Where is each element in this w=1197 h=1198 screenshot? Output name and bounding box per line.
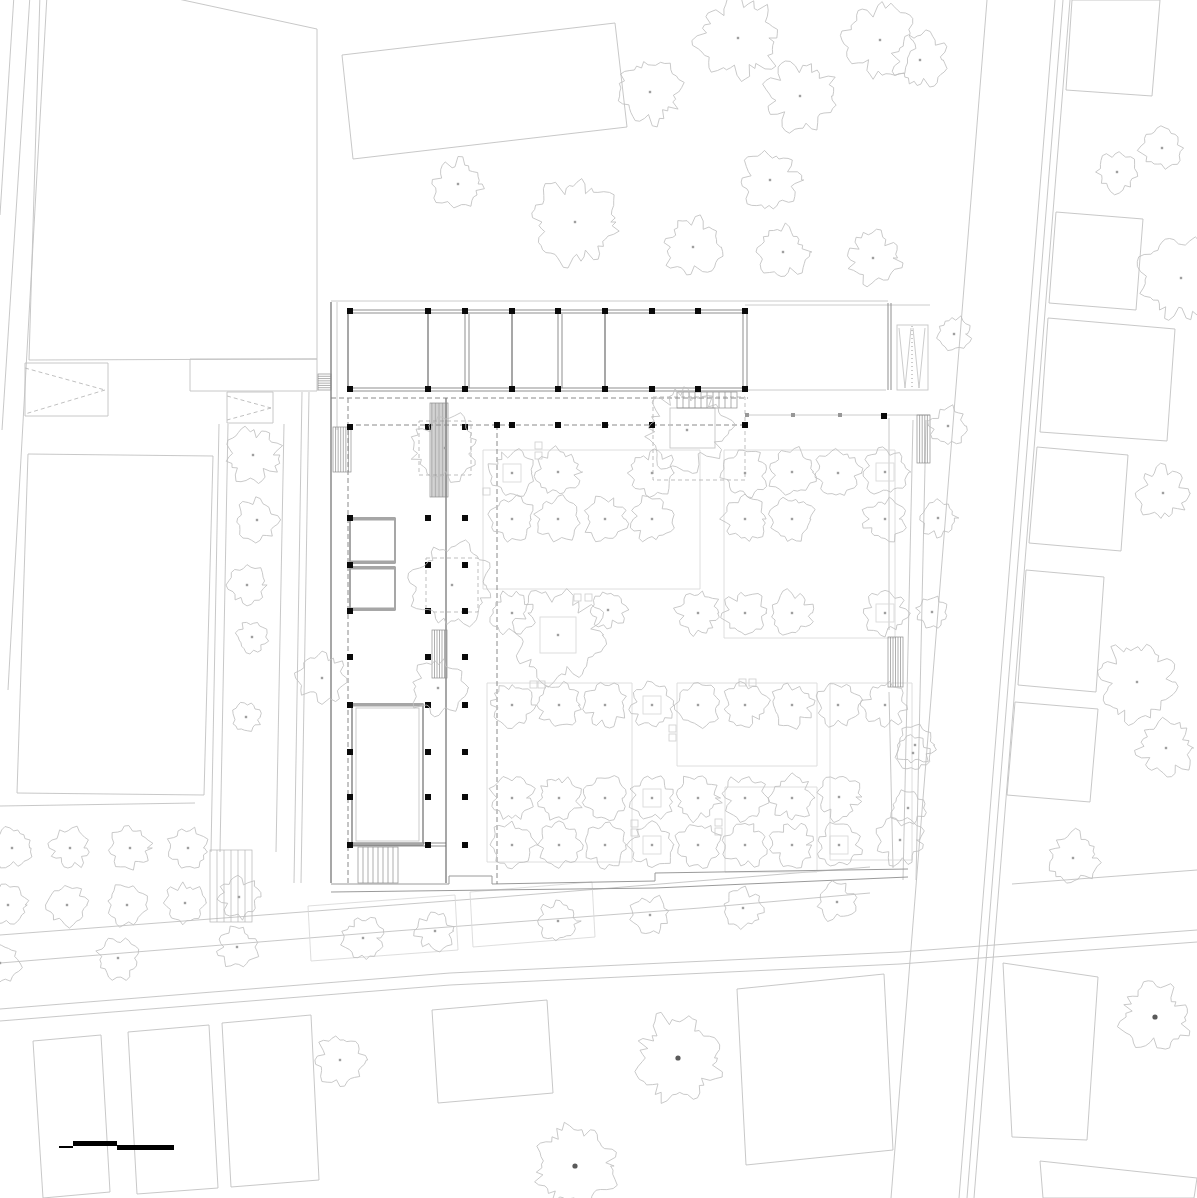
- column: [462, 424, 468, 430]
- tree-trunk-dot: [1136, 681, 1138, 683]
- tree-canopy: [692, 0, 778, 82]
- tree-trunk-dot: [907, 807, 909, 809]
- tree-canopy: [0, 884, 29, 924]
- tree-canopy: [1135, 717, 1194, 777]
- tree-trunk-dot: [744, 797, 746, 799]
- road-line: [889, 692, 893, 868]
- tree-trunk-dot: [879, 39, 881, 41]
- tree-canopy: [512, 589, 606, 688]
- tree-trunk-dot: [791, 704, 793, 706]
- tree-trunk-dot: [604, 704, 606, 706]
- parcel-sw-b5: [222, 1015, 319, 1187]
- sports-field: [17, 454, 213, 795]
- bed-sw: [487, 683, 632, 862]
- tree-trunk-dot: [607, 609, 609, 611]
- parcel-se-7: [1040, 1161, 1197, 1198]
- ground-marker: [585, 594, 592, 601]
- column: [602, 422, 608, 428]
- column: [425, 794, 431, 800]
- column: [425, 654, 431, 660]
- tree-trunk-dot: [651, 704, 653, 706]
- ground-marker: [669, 734, 676, 741]
- tree-trunk-dot: [511, 518, 513, 520]
- road-line: [294, 392, 302, 883]
- school-building-layer: [210, 301, 930, 922]
- room-wall-bar: [352, 843, 423, 846]
- road-line: [974, 0, 1070, 1198]
- tree-trunk-dot: [651, 472, 653, 474]
- room: [352, 704, 423, 845]
- tree-canopy: [627, 821, 675, 868]
- tree-canopy: [897, 724, 936, 763]
- shed-a: [25, 363, 108, 416]
- tree-trunk-dot: [604, 518, 606, 520]
- tree-canopy: [674, 591, 720, 637]
- tree-canopy: [848, 229, 904, 287]
- bed-ne: [724, 450, 895, 638]
- road-line: [1012, 870, 1197, 884]
- tree-trunk-dot: [884, 612, 886, 614]
- tree-canopy: [1137, 237, 1197, 320]
- tree-canopy: [618, 62, 684, 127]
- tree-canopy: [724, 682, 770, 728]
- tree-pit-dashed: [653, 397, 745, 480]
- tree-trunk-dot: [245, 716, 247, 718]
- tree-trunk-dot: [744, 704, 746, 706]
- tree-trunk-dot: [238, 896, 240, 898]
- column: [347, 562, 353, 568]
- ground-marker: [483, 488, 490, 495]
- road-line: [891, 0, 987, 1198]
- column: [347, 608, 353, 614]
- scale-bar: [59, 1141, 174, 1150]
- tree-canopy: [816, 684, 863, 728]
- parcel-e-4: [1018, 570, 1104, 692]
- bed-e2: [830, 683, 912, 860]
- tree-trunk-dot: [557, 518, 559, 520]
- tree-trunk-dot: [836, 901, 838, 903]
- tree-canopy: [768, 773, 815, 820]
- column: [425, 842, 431, 848]
- tree-canopy: [928, 405, 968, 445]
- road-line: [903, 420, 913, 880]
- parcel-sw-b3: [33, 1035, 110, 1198]
- tree-trunk-dot: [649, 914, 651, 916]
- road-line: [220, 424, 228, 852]
- tree-trunk-dot: [437, 687, 439, 689]
- tree-trunk-dot: [184, 902, 186, 904]
- column: [509, 422, 515, 428]
- room-inner-line: [356, 708, 419, 841]
- tree-canopy: [1096, 152, 1138, 195]
- tree-trunk-dot: [899, 839, 901, 841]
- tree-trunk-dot: [451, 584, 453, 586]
- parcel-s-b1: [432, 1000, 553, 1103]
- column: [881, 413, 887, 419]
- tree-canopy: [920, 499, 959, 538]
- tree-trunk-dot: [574, 221, 576, 223]
- column: [347, 386, 353, 392]
- tree-trunk-dot: [511, 472, 513, 474]
- tree-canopy: [1135, 463, 1190, 518]
- tree-trunk-dot: [7, 904, 9, 906]
- tree-canopy: [772, 683, 815, 729]
- tree-trunk-dot: [557, 471, 559, 473]
- column: [742, 308, 748, 314]
- tree-trunk-dot: [884, 704, 886, 706]
- road-line: [301, 392, 309, 883]
- tree-canopy: [48, 826, 89, 868]
- tree-trunk-dot: [697, 797, 699, 799]
- ground-marker: [574, 594, 581, 601]
- tree-canopy: [534, 446, 582, 494]
- tree-trunk-dot: [912, 752, 914, 754]
- tree-trunk-dot: [651, 518, 653, 520]
- shed-dashed-line: [227, 408, 271, 420]
- tree-trunk-dot: [187, 847, 189, 849]
- tree-trunk-dot: [1116, 171, 1118, 173]
- tree-trunk-dot: [1152, 1014, 1157, 1019]
- column: [555, 308, 561, 314]
- parcel-e-1: [1049, 212, 1143, 310]
- column: [649, 386, 655, 392]
- annex-south-of-big-building: [190, 359, 317, 391]
- bed-se: [725, 787, 817, 872]
- parcel-e-2: [1040, 318, 1175, 441]
- column: [555, 386, 561, 392]
- column: [462, 386, 468, 392]
- tree-trunk-dot: [744, 612, 746, 614]
- tree-trunk-dot: [837, 704, 839, 706]
- tree-trunk-dot: [651, 844, 653, 846]
- scale-bar-segment: [73, 1141, 117, 1146]
- tree-trunk-dot: [791, 612, 793, 614]
- tree-canopy: [538, 900, 582, 941]
- column: [695, 386, 701, 392]
- tree-trunk-dot: [1072, 857, 1074, 859]
- tree-trunk-dot: [444, 447, 446, 449]
- small-markers-layer: [483, 442, 756, 836]
- context-roads-layer: [0, 0, 1197, 1198]
- column: [509, 308, 515, 314]
- road-line: [0, 930, 1197, 1009]
- tree-canopy: [538, 821, 584, 869]
- tree-trunk-dot: [737, 37, 739, 39]
- tree-trunk-dot: [791, 518, 793, 520]
- tree-trunk-dot: [1165, 747, 1167, 749]
- tree-trunk-dot: [1180, 277, 1182, 279]
- tree-canopy: [675, 825, 721, 869]
- tree-trunk-dot: [362, 937, 364, 939]
- trees-layer: [0, 0, 1197, 1198]
- column: [462, 515, 468, 521]
- tree-trunk-dot: [791, 844, 793, 846]
- column: [425, 608, 431, 614]
- tree-trunk-dot: [782, 251, 784, 253]
- column: [347, 308, 353, 314]
- tree-canopy: [226, 426, 282, 483]
- tree-trunk-dot: [799, 95, 801, 97]
- tree-canopy: [664, 215, 723, 275]
- tree-canopy: [863, 447, 911, 494]
- tree-trunk-dot: [511, 612, 513, 614]
- tree-trunk-dot: [884, 471, 886, 473]
- column: [555, 422, 561, 428]
- column: [347, 654, 353, 660]
- tree-canopy: [721, 592, 767, 635]
- site-plan: [0, 0, 1197, 1198]
- tree-canopy: [863, 590, 910, 637]
- ground-marker: [749, 679, 756, 686]
- scale-bar-segment: [117, 1145, 174, 1150]
- tree-trunk-dot: [937, 517, 939, 519]
- tree-trunk-dot: [953, 333, 955, 335]
- tree-canopy: [590, 592, 629, 629]
- tree-trunk-dot: [511, 704, 513, 706]
- bed-road-2: [470, 882, 595, 947]
- tree-trunk-dot: [791, 471, 793, 473]
- tree-canopy: [722, 777, 769, 823]
- tree-trunk-dot: [914, 744, 916, 746]
- column: [347, 702, 353, 708]
- tree-canopy: [237, 497, 281, 543]
- tree-trunk-dot: [675, 1055, 680, 1060]
- ramp-chevron: [899, 328, 911, 388]
- column: [347, 515, 353, 521]
- tree-canopy: [315, 1036, 368, 1087]
- column: [425, 749, 431, 755]
- road-line: [916, 420, 926, 880]
- tree-trunk-dot: [557, 634, 559, 636]
- column: [602, 308, 608, 314]
- room-wall-bar: [350, 561, 395, 564]
- ground-marker: [535, 442, 542, 449]
- tree-canopy: [720, 494, 767, 541]
- tree-trunk-dot: [69, 847, 71, 849]
- road-line: [0, 0, 14, 215]
- column: [425, 386, 431, 392]
- tree-canopy: [741, 150, 804, 209]
- parcel-e-5: [1007, 702, 1098, 802]
- tree-trunk-dot: [252, 454, 254, 456]
- parcel-sw-b4: [128, 1025, 218, 1194]
- room: [350, 518, 395, 563]
- road-line: [959, 0, 1055, 1198]
- tree-canopy: [413, 659, 469, 717]
- paving-rect: [670, 408, 715, 448]
- parcel-ne-0: [1066, 0, 1160, 96]
- room-wall-bar: [350, 518, 395, 521]
- tree-trunk-dot: [947, 425, 949, 427]
- bed-nw: [483, 450, 700, 589]
- tree-trunk-dot: [604, 844, 606, 846]
- road-line: [0, 803, 195, 806]
- ground-marker: [530, 681, 537, 688]
- tree-trunk-dot: [117, 957, 119, 959]
- parcel-se-6: [1003, 963, 1098, 1140]
- tree-trunk-dot: [0, 962, 1, 964]
- tree-trunk-dot: [251, 636, 253, 638]
- parcel-e-3: [1029, 447, 1128, 551]
- road-line: [0, 867, 870, 935]
- column: [742, 422, 748, 428]
- tree-canopy: [645, 387, 736, 474]
- scale-bar-segment: [59, 1146, 73, 1148]
- column: [462, 562, 468, 568]
- column-light: [838, 413, 842, 417]
- tree-trunk-dot: [744, 518, 746, 520]
- rotated-building-top: [342, 23, 627, 159]
- tree-trunk-dot: [11, 847, 13, 849]
- context-parcels-layer: [17, 0, 1197, 1198]
- tree-canopy: [532, 179, 619, 268]
- big-building-northwest: [29, 0, 317, 360]
- tree-canopy: [432, 157, 485, 208]
- column: [494, 422, 500, 428]
- tree-canopy: [891, 30, 947, 87]
- tree-trunk-dot: [769, 179, 771, 181]
- tree-trunk-dot: [651, 797, 653, 799]
- tree-trunk-dot: [744, 844, 746, 846]
- tree-canopy: [535, 1122, 618, 1198]
- tree-trunk-dot: [686, 429, 688, 431]
- shed-dashed-line: [227, 396, 271, 408]
- tree-canopy: [0, 944, 22, 984]
- ground-marker: [715, 819, 722, 826]
- tree-trunk-dot: [791, 797, 793, 799]
- site-plan-drawing: [0, 0, 1197, 1198]
- column: [462, 794, 468, 800]
- tree-trunk-dot: [558, 797, 560, 799]
- column: [462, 702, 468, 708]
- bed-s: [677, 683, 817, 766]
- parcel-s-b2: [737, 974, 893, 1165]
- tree-trunk-dot: [697, 704, 699, 706]
- tree-trunk-dot: [1162, 492, 1164, 494]
- room-wall-bar: [350, 608, 395, 611]
- ramp-chevron: [913, 328, 925, 388]
- tree-trunk-dot: [511, 844, 513, 846]
- tree-trunk-dot: [604, 797, 606, 799]
- column: [347, 749, 353, 755]
- tree-trunk-dot: [126, 904, 128, 906]
- tree-trunk-dot: [919, 59, 921, 61]
- tree-trunk-dot: [884, 518, 886, 520]
- tree-canopy: [1137, 126, 1183, 170]
- road-line: [8, 0, 47, 690]
- tree-trunk-dot: [838, 796, 840, 798]
- road-line: [276, 424, 284, 852]
- tree-canopy: [96, 938, 139, 980]
- tree-trunk-dot: [931, 611, 933, 613]
- column-light: [791, 413, 795, 417]
- room-wall-bar: [352, 704, 423, 707]
- tree-canopy: [720, 450, 767, 498]
- tree-canopy: [46, 886, 89, 929]
- room-wall-bar: [350, 567, 395, 570]
- tree-trunk-dot: [434, 930, 436, 932]
- tree-trunk-dot: [649, 91, 651, 93]
- tree-canopy: [1098, 644, 1179, 725]
- tree-trunk-dot: [572, 1163, 577, 1168]
- shed-dashed-line: [25, 390, 105, 414]
- tree-trunk-dot: [511, 797, 513, 799]
- ground-marker: [669, 725, 676, 732]
- tree-canopy: [817, 777, 862, 823]
- shed-dashed-line: [25, 368, 105, 390]
- tree-trunk-dot: [129, 847, 131, 849]
- tree-trunk-dot: [872, 257, 874, 259]
- column: [742, 386, 748, 392]
- column: [347, 794, 353, 800]
- column: [462, 608, 468, 614]
- column: [462, 308, 468, 314]
- tree-trunk-dot: [742, 907, 744, 909]
- tree-trunk-dot: [838, 844, 840, 846]
- tree-trunk-dot: [692, 246, 694, 248]
- tree-canopy: [294, 651, 347, 704]
- room: [350, 567, 395, 610]
- tree-trunk-dot: [697, 844, 699, 846]
- tree-trunk-dot: [697, 612, 699, 614]
- column: [425, 515, 431, 521]
- tree-trunk-dot: [321, 677, 323, 679]
- tree-trunk-dot: [558, 844, 560, 846]
- tree-trunk-dot: [457, 183, 459, 185]
- tree-canopy: [1049, 828, 1101, 883]
- ground-marker: [535, 452, 542, 459]
- tree-canopy: [584, 496, 628, 542]
- column: [649, 308, 655, 314]
- tree-canopy: [0, 827, 32, 868]
- column: [347, 424, 353, 430]
- road-line: [0, 942, 1197, 1021]
- column: [695, 308, 701, 314]
- tree-trunk-dot: [236, 946, 238, 948]
- column: [602, 386, 608, 392]
- tree-trunk-dot: [744, 472, 746, 474]
- column: [347, 842, 353, 848]
- tree-trunk-dot: [256, 519, 258, 521]
- tree-canopy: [756, 223, 812, 277]
- tree-trunk-dot: [558, 704, 560, 706]
- tree-trunk-dot: [66, 904, 68, 906]
- tree-trunk-dot: [339, 1059, 341, 1061]
- tree-canopy: [676, 776, 722, 823]
- column-light: [745, 413, 749, 417]
- column: [425, 308, 431, 314]
- road-line: [967, 0, 1063, 1198]
- column: [462, 654, 468, 660]
- column: [462, 749, 468, 755]
- tree-trunk-dot: [557, 920, 559, 922]
- tree-canopy: [840, 2, 916, 80]
- column: [509, 386, 515, 392]
- tree-trunk-dot: [246, 584, 248, 586]
- tree-canopy: [488, 495, 533, 542]
- column: [462, 842, 468, 848]
- tree-trunk-dot: [1161, 147, 1163, 149]
- tree-trunk-dot: [837, 472, 839, 474]
